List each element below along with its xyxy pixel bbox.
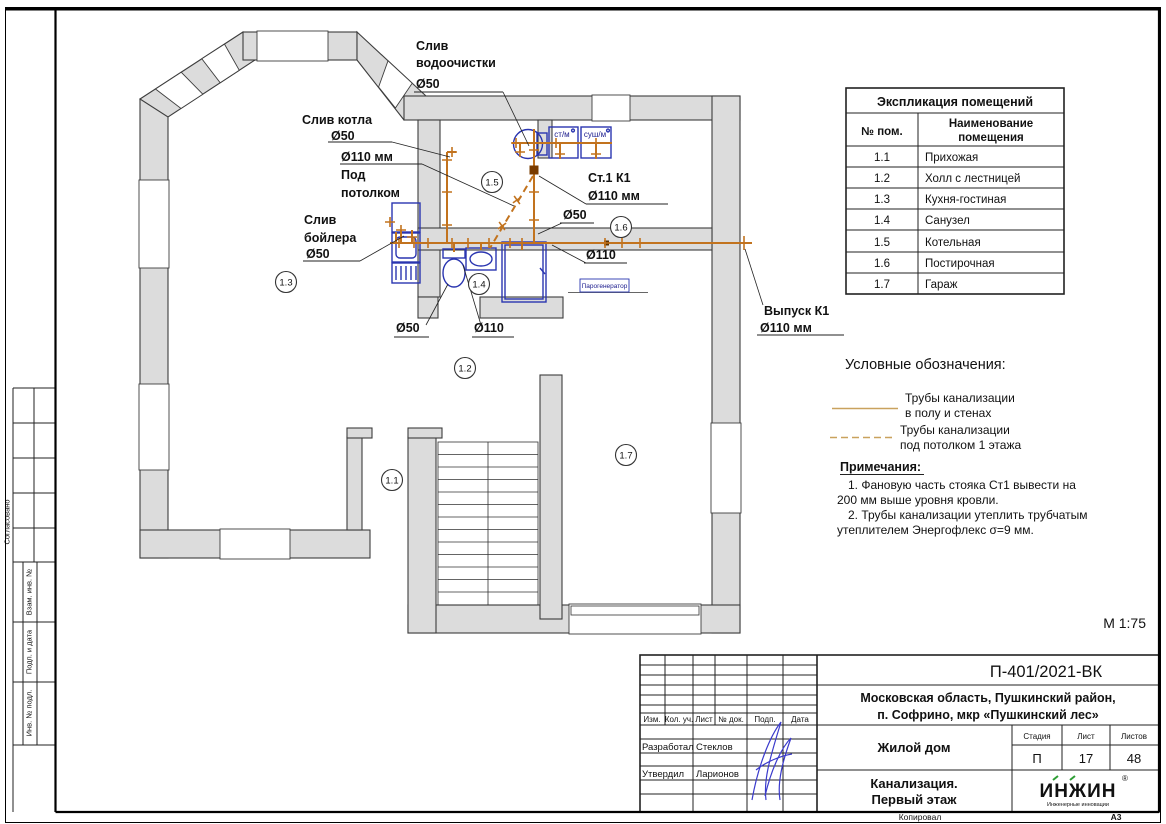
company-logo: ИНЖИН ® Инженерные инновации [1040,774,1128,808]
registered-mark: ® [1122,774,1128,783]
legend-item-ceiling: Трубы канализации [900,423,1010,437]
kitchen-cabinet [392,203,420,232]
svg-text:1.1: 1.1 [874,152,890,164]
label-outlet: Выпуск К1 [764,304,829,318]
name-developed: Стеклов [696,742,733,753]
role-approved: Утвердил [642,769,684,780]
svg-text:1.2: 1.2 [874,173,890,185]
room-marker-1-2: 1.2 [455,358,476,379]
svg-text:Под: Под [341,168,365,182]
sheet-label: Лист [1077,732,1095,741]
svg-text:Санузел: Санузел [925,215,970,227]
room-marker-1-3: 1.3 [276,272,297,293]
shower-cabin [502,242,546,302]
col-list: Лист [695,715,713,724]
doc-number: П-401/2021-ВК [990,663,1103,681]
svg-text:1.2: 1.2 [458,364,471,375]
legend-item-floor: Трубы канализации [905,391,1015,405]
legend-title: Условные обозначения: [845,357,1006,373]
table-row: 1.4 Санузел [874,215,970,227]
table-col-name: Наименование [949,118,1033,130]
table-col-num: № пом. [861,126,903,138]
label-boiler-drain: Слив котла [302,113,373,127]
svg-text:помещения: помещения [958,132,1024,144]
svg-text:Кухня-гостиная: Кухня-гостиная [925,194,1006,206]
note-1: 1. Фановую часть стояка Ст1 вывести на [848,478,1076,492]
svg-text:бойлера: бойлера [304,231,357,245]
side-label-vzam: Взам. инв. № [25,569,34,615]
object-name: Жилой дом [876,740,950,755]
svg-text:водоочистки: водоочистки [416,56,496,70]
svg-text:1.7: 1.7 [619,451,632,462]
notes: Примечания: 1. Фановую часть стояка Ст1 … [837,460,1087,537]
stairs [438,442,538,605]
table-row: 1.1 Прихожая [874,152,978,164]
notes-title: Примечания: [840,460,921,474]
label-ceiling-pipe: Ø110 мм [341,150,393,164]
label-d50-bath: Ø50 [396,321,420,335]
svg-text:1.3: 1.3 [279,278,292,289]
bath-sink [466,248,496,270]
svg-text:утеплителем Энергофлекс σ=9 мм: утеплителем Энергофлекс σ=9 мм. [837,523,1034,537]
svg-text:под потолком 1 этажа: под потолком 1 этажа [900,438,1021,452]
role-developed: Разработал [642,742,694,753]
svg-text:Постирочная: Постирочная [925,258,995,270]
toilet [443,249,465,287]
stack-marker [530,166,539,175]
col-kol-uch: Кол. уч. [665,715,693,724]
svg-text:1.5: 1.5 [485,178,498,189]
room-marker-1-4: 1.4 [469,274,490,295]
svg-text:Ø110 мм: Ø110 мм [760,321,812,335]
steam-generator-label: Парогенератор [582,283,628,290]
side-column: Согласовано Взам. инв. № Подп. и дата Ин… [3,388,56,812]
svg-text:1.4: 1.4 [874,215,891,227]
svg-text:200 мм выше уровня кровли.: 200 мм выше уровня кровли. [837,493,999,507]
col-data: Дата [791,715,809,724]
svg-text:1.6: 1.6 [874,258,890,270]
col-ndok: № док. [718,715,744,724]
svg-text:Прихожая: Прихожая [925,152,978,164]
svg-text:Ø50: Ø50 [331,129,355,143]
svg-text:Ø50: Ø50 [306,247,330,261]
address-line-2: п. Софрино, мкр «Пушкинский лес» [877,708,1099,722]
washer-label: ст/м [554,130,569,139]
svg-text:потолком: потолком [341,186,400,200]
table-row: 1.6 Постирочная [874,258,995,270]
explication-table: Экспликация помещений № пом. Наименовани… [846,88,1064,294]
table-title: Экспликация помещений [877,95,1033,109]
sheet-name-1: Канализация. [870,776,957,791]
legend: Условные обозначения: Трубы канализации … [830,357,1021,452]
room-marker-1-1: 1.1 [382,470,403,491]
room-marker-1-5: 1.5 [482,172,503,193]
svg-text:Гараж: Гараж [925,279,958,291]
svg-text:1.4: 1.4 [472,280,485,291]
sheets-value: 48 [1127,751,1141,766]
sheets-label: Листов [1121,732,1147,741]
stage-label: Стадия [1023,732,1050,741]
side-label-podp: Подп. и дата [25,629,34,674]
room-marker-1-6: 1.6 [611,217,632,238]
copied-label: Копировал [899,812,942,822]
svg-text:1.7: 1.7 [874,279,890,291]
table-row: 1.5 Котельная [874,237,981,249]
sheet-name-2: Первый этаж [871,792,957,807]
address-line-1: Московская область, Пушкинский район, [860,691,1115,705]
svg-text:ИНЖИН: ИНЖИН [1040,781,1117,802]
svg-text:Холл с лестницей: Холл с лестницей [925,173,1020,185]
svg-text:1.5: 1.5 [874,237,890,249]
name-approved: Ларионов [696,769,739,780]
dryer-label: суш/м [584,130,606,139]
drawing-sheet: ст/м суш/м Парогенератор [0,0,1166,824]
signature [752,722,792,800]
side-label-agreed: Согласовано [3,499,12,544]
label-water-treatment-drain: Слив [416,39,449,53]
side-label-inv: Инв. № подл. [25,690,34,737]
label-d110-laundry: Ø110 [586,248,616,262]
format-label: А3 [1111,812,1122,822]
logo-leaf-icon [1053,776,1075,780]
logo-subtitle: Инженерные инновации [1047,802,1109,808]
svg-text:Ø50: Ø50 [416,77,440,91]
sheet-value: 17 [1079,751,1093,766]
note-2: 2. Трубы канализации утеплить трубчатым [848,508,1087,522]
svg-text:1.3: 1.3 [874,194,890,206]
label-d110-bath: Ø110 [474,321,504,335]
svg-text:1.6: 1.6 [614,223,627,234]
floor-plan: ст/м суш/м Парогенератор [139,31,844,634]
svg-text:Ø110 мм: Ø110 мм [588,189,640,203]
col-podp: Подп. [754,715,775,724]
label-d50-stack: Ø50 [563,208,587,222]
steam-generator: Парогенератор [568,279,648,293]
stage-value: П [1032,751,1041,766]
scale-label: М 1:75 [1103,615,1146,631]
label-tank-drain: Слив [304,213,337,227]
svg-text:Котельная: Котельная [925,237,981,249]
table-row: 1.2 Холл с лестницей [874,173,1020,185]
table-row: 1.3 Кухня-гостиная [874,194,1006,206]
title-block: Изм. Кол. уч. Лист № док. Подп. Дата Раз… [640,655,1159,812]
svg-text:1.1: 1.1 [385,476,398,487]
table-row: 1.7 Гараж [874,279,958,291]
label-stack: Ст.1 К1 [588,171,631,185]
col-izm: Изм. [643,715,660,724]
room-marker-1-7: 1.7 [616,445,637,466]
svg-text:в полу и стенах: в полу и стенах [905,406,991,420]
